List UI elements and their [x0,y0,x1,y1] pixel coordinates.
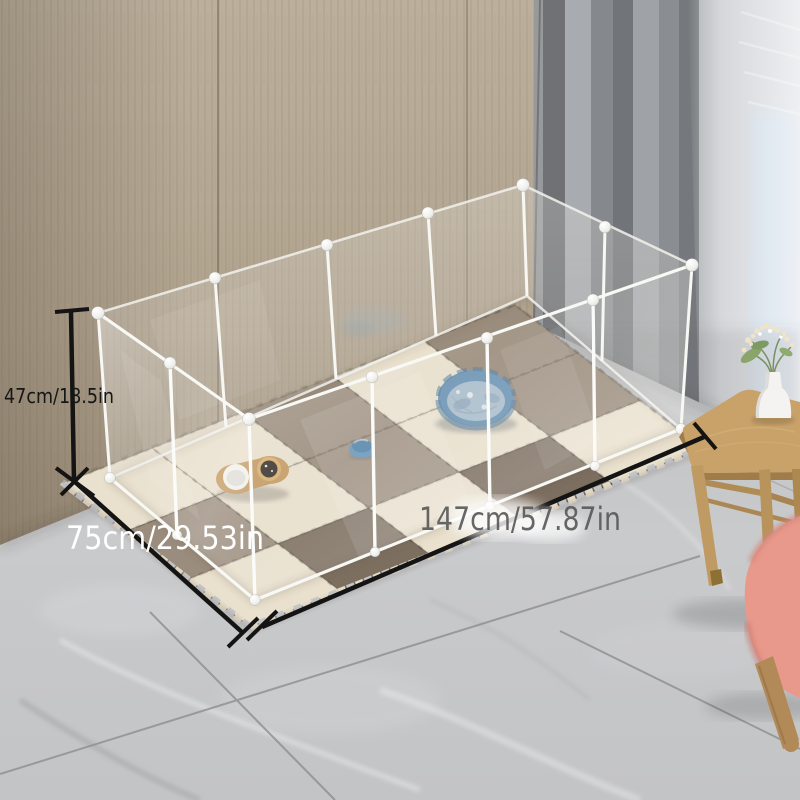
product-photo: 47cm/18.5in 75cm/29.53in 147cm/57.87in [0,0,800,800]
width-label: 75cm/29.53in [66,519,264,557]
length-label: 147cm/57.87in [419,500,621,538]
scene: 47cm/18.5in 75cm/29.53in 147cm/57.87in [0,0,800,800]
height-label: 47cm/18.5in [4,384,114,408]
